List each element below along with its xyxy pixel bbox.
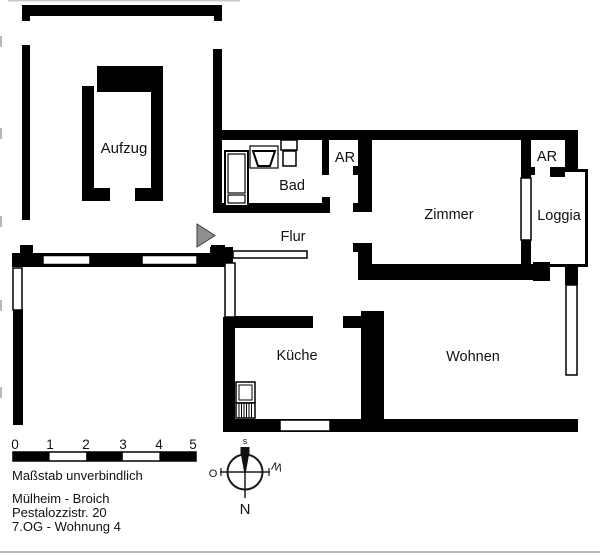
- room-label-wohnen: Wohnen: [446, 349, 500, 365]
- stove-icon: [236, 382, 255, 418]
- scale-note: Maßstab unverbindlich: [12, 468, 143, 483]
- bathroom-fixtures: [225, 140, 297, 206]
- building-walls: [12, 5, 578, 432]
- room-label-zimmer: Zimmer: [424, 207, 473, 223]
- elevator-shaft: [82, 66, 163, 201]
- room-label-bad: Bad: [279, 178, 305, 194]
- address-floor: 7.OG - Wohnung 4: [12, 519, 121, 534]
- floorplan-drawing: Aufzug Bad Flur AR Zimmer AR Loggia Küch…: [0, 0, 600, 556]
- windows: [13, 178, 577, 431]
- scale-tick-1: 1: [46, 437, 54, 452]
- toilet-icon: [281, 140, 297, 166]
- room-label-aufzug: Aufzug: [101, 140, 148, 157]
- address-city: Mülheim - Broich: [12, 491, 110, 506]
- address-street: Pestalozzistr. 20: [12, 505, 107, 520]
- compass-label-n: N: [240, 501, 251, 518]
- sink-icon: [250, 146, 278, 168]
- compass-needle-icon: [241, 447, 250, 473]
- scale-tick-2: 2: [82, 437, 90, 452]
- room-label-flur: Flur: [281, 229, 306, 245]
- scale-tick-0: 0: [11, 437, 19, 452]
- compass-label-o: O: [209, 468, 218, 480]
- compass-label-s: s: [243, 436, 248, 446]
- scale-tick-4: 4: [155, 437, 163, 452]
- entrance-arrow-icon: [197, 224, 215, 247]
- room-label-ar1: AR: [335, 150, 355, 166]
- compass-rose: s O W N: [209, 436, 284, 518]
- scale-tick-5: 5: [189, 437, 197, 452]
- room-label-loggia: Loggia: [537, 208, 581, 224]
- room-label-ar2: AR: [537, 149, 557, 165]
- floorplan-page: Aufzug Bad Flur AR Zimmer AR Loggia Küch…: [0, 0, 600, 556]
- kitchen-fixtures: [236, 382, 255, 418]
- compass-label-w: W: [270, 459, 283, 473]
- entrance-door-leaf: [233, 251, 307, 258]
- scale-bar: 0 1 2 3 4 5: [11, 437, 197, 461]
- bathtub-icon: [225, 151, 248, 206]
- room-label-kueche: Küche: [276, 348, 317, 364]
- scale-tick-3: 3: [119, 437, 127, 452]
